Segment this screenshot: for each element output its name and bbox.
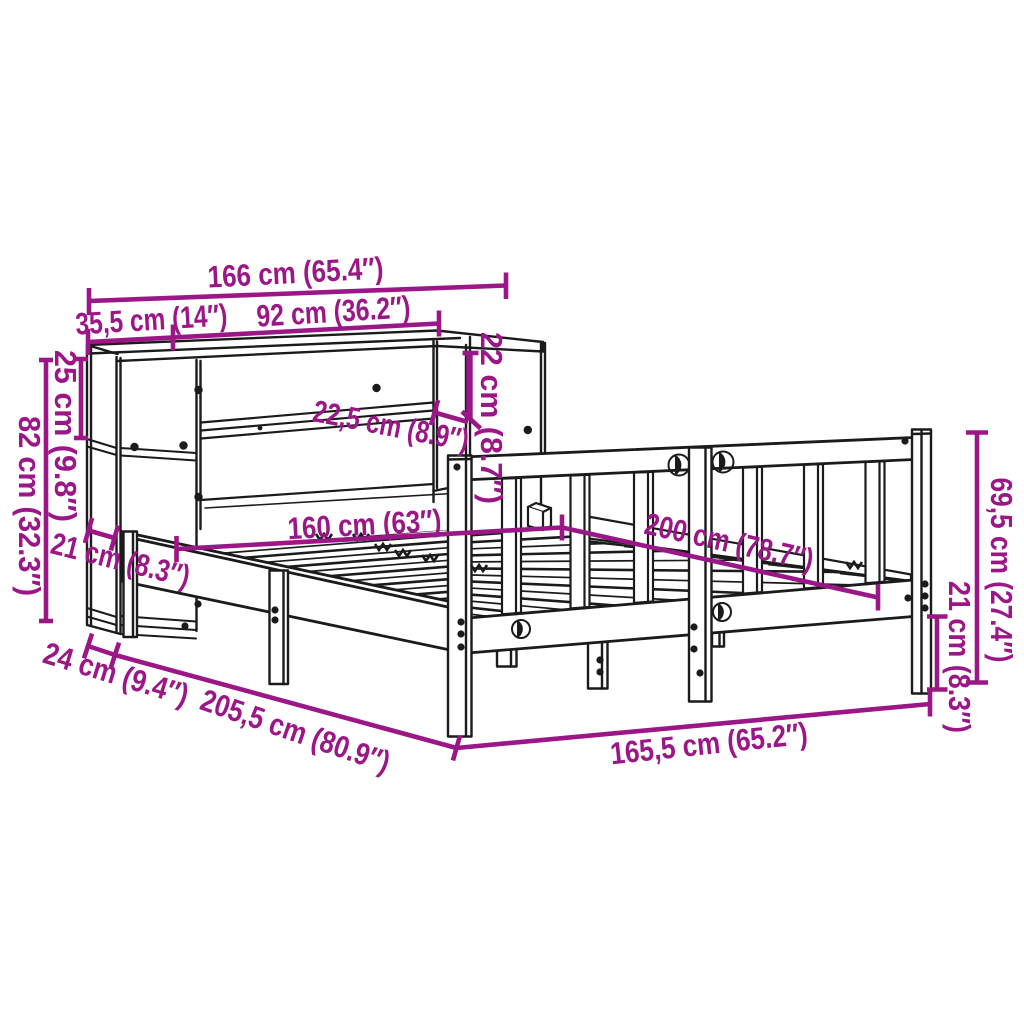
svg-text:25 cm (9.8″): 25 cm (9.8″) — [48, 350, 83, 522]
svg-text:21 cm (8.3″): 21 cm (8.3″) — [942, 581, 977, 733]
svg-text:22 cm (8.7″): 22 cm (8.7″) — [474, 332, 509, 504]
svg-text:82 cm (32.3″): 82 cm (32.3″) — [12, 416, 47, 596]
svg-text:69,5 cm (27.4″): 69,5 cm (27.4″) — [984, 478, 1019, 663]
